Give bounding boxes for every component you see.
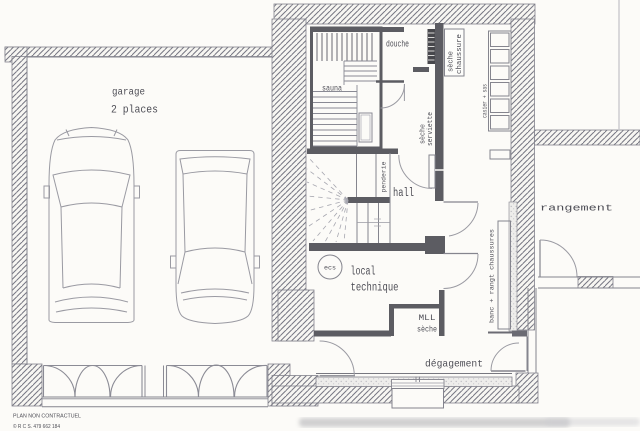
svg-text:hall: hall — [393, 187, 414, 200]
svg-text:PLAN NON CONTRACTUEL: PLAN NON CONTRACTUEL — [13, 414, 82, 420]
svg-text:chaussure: chaussure — [456, 34, 464, 74]
svg-text:douche: douche — [386, 40, 409, 50]
svg-text:sauna: sauna — [322, 84, 342, 94]
svg-text:penderie: penderie — [381, 161, 388, 192]
svg-text:banc + rangt chaussures: banc + rangt chaussures — [489, 229, 496, 323]
svg-text:serviette: serviette — [427, 112, 435, 146]
svg-text:rangement: rangement — [540, 203, 613, 214]
svg-text:garage: garage — [112, 88, 145, 99]
svg-text:local: local — [351, 266, 376, 279]
svg-text:2 places: 2 places — [111, 105, 158, 117]
svg-text:MLL: MLL — [419, 313, 436, 323]
svg-text:casier + sas: casier + sas — [482, 84, 489, 118]
svg-text:sèche: sèche — [448, 51, 456, 72]
svg-text:© R C S. 479 662 184: © R C S. 479 662 184 — [13, 423, 60, 430]
svg-text:dégagement: dégagement — [425, 359, 483, 371]
svg-text:ecs: ecs — [324, 265, 336, 272]
svg-text:technique: technique — [351, 282, 399, 295]
svg-text:sèche: sèche — [417, 325, 437, 335]
